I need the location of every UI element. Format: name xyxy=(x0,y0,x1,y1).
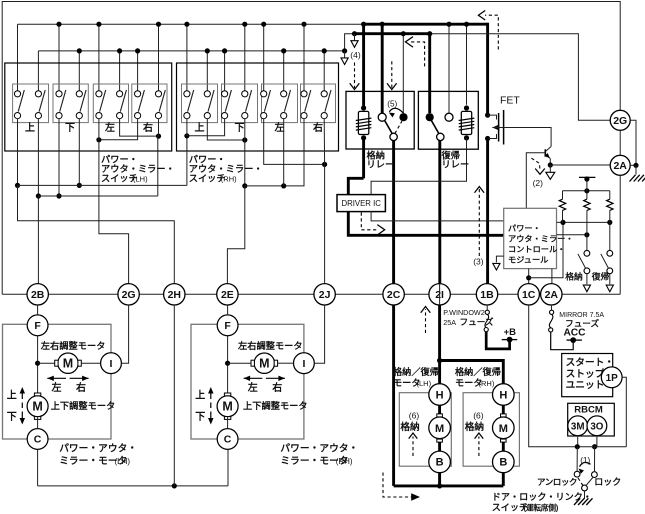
svg-text:(LH): (LH) xyxy=(115,457,131,466)
svg-text:左: 左 xyxy=(104,121,115,134)
svg-text:格納／復帰: 格納／復帰 xyxy=(393,366,439,377)
svg-text:アンロック: アンロック xyxy=(537,477,577,487)
svg-text:M: M xyxy=(32,400,42,414)
svg-text:H: H xyxy=(499,389,507,401)
svg-text:RBCM: RBCM xyxy=(574,405,603,416)
svg-text:モジュール: モジュール xyxy=(508,256,549,265)
svg-text:M: M xyxy=(259,356,269,370)
svg-text:コントロール・: コントロール・ xyxy=(508,245,565,254)
svg-text:パワー・: パワー・ xyxy=(508,223,541,233)
svg-text:ドア・ロック・リンク・: ドア・ロック・リンク・ xyxy=(492,492,592,502)
svg-text:パワー・アウタ・: パワー・アウタ・ xyxy=(280,443,358,455)
svg-text:リレー: リレー xyxy=(442,160,470,170)
svg-text:リレー: リレー xyxy=(367,160,395,170)
svg-text:1P: 1P xyxy=(606,373,619,384)
svg-text:H: H xyxy=(436,389,444,401)
svg-text:P.WINDOW2: P.WINDOW2 xyxy=(443,308,484,317)
svg-text:(1): (1) xyxy=(580,456,590,465)
svg-text:上: 上 xyxy=(195,389,205,402)
svg-text:上下調整モータ: 上下調整モータ xyxy=(51,400,116,411)
svg-text:(4): (4) xyxy=(350,50,361,60)
svg-text:1B: 1B xyxy=(480,289,494,301)
svg-text:(運転席側): (運転席側) xyxy=(524,503,559,513)
svg-text:パワー・: パワー・ xyxy=(101,153,138,164)
svg-text:アウタ・ミラー・: アウタ・ミラー・ xyxy=(101,163,175,174)
svg-text:(6): (6) xyxy=(409,410,420,420)
svg-text:(6): (6) xyxy=(473,410,484,420)
svg-text:格納: 格納 xyxy=(400,420,420,433)
svg-text:下: 下 xyxy=(7,411,17,423)
svg-text:C: C xyxy=(224,434,232,446)
svg-text:ACC: ACC xyxy=(563,328,586,339)
svg-text:F: F xyxy=(224,320,231,332)
svg-text:ロック: ロック xyxy=(594,477,621,487)
svg-text:2A: 2A xyxy=(613,160,627,172)
svg-text:2G: 2G xyxy=(122,289,136,301)
svg-text:(RH): (RH) xyxy=(221,175,237,184)
svg-text:1C: 1C xyxy=(522,289,536,301)
svg-text:パワー・アウタ・: パワー・アウタ・ xyxy=(59,443,137,455)
svg-text:(LH): (LH) xyxy=(133,175,148,184)
svg-text:F: F xyxy=(34,320,41,332)
svg-text:格納: 格納 xyxy=(465,420,485,433)
svg-text:アウタ・ミラー・: アウタ・ミラー・ xyxy=(189,163,263,174)
svg-text:格納／復帰: 格納／復帰 xyxy=(455,366,501,377)
svg-text:DRIVER IC: DRIVER IC xyxy=(341,199,381,208)
svg-text:上: 上 xyxy=(7,389,17,402)
svg-text:+B: +B xyxy=(504,327,517,338)
svg-text:上: 上 xyxy=(195,121,205,134)
svg-text:2B: 2B xyxy=(31,289,45,301)
svg-text:上: 上 xyxy=(25,121,35,134)
svg-text:右: 右 xyxy=(75,381,86,394)
svg-text:3M: 3M xyxy=(571,421,585,432)
svg-text:スタート・: スタート・ xyxy=(566,357,614,369)
svg-text:2A: 2A xyxy=(545,289,559,301)
svg-text:右: 右 xyxy=(271,381,282,394)
svg-text:2J: 2J xyxy=(319,289,331,301)
svg-text:復帰: 復帰 xyxy=(591,270,610,281)
svg-text:左右調整モータ: 左右調整モータ xyxy=(237,340,303,351)
svg-text:M: M xyxy=(63,356,73,370)
svg-text:パワー・: パワー・ xyxy=(189,153,226,164)
svg-text:下: 下 xyxy=(195,411,205,423)
svg-text:左右調整モータ: 左右調整モータ xyxy=(40,340,106,351)
svg-text:(RH): (RH) xyxy=(479,379,495,388)
svg-text:2E: 2E xyxy=(221,289,234,301)
svg-text:(2): (2) xyxy=(533,178,544,188)
svg-text:2H: 2H xyxy=(168,289,181,301)
svg-text:(LH): (LH) xyxy=(417,379,432,388)
svg-text:M: M xyxy=(222,400,232,414)
svg-text:(3): (3) xyxy=(473,257,484,267)
svg-text:I: I xyxy=(110,358,113,370)
svg-text:B: B xyxy=(499,457,507,469)
svg-text:C: C xyxy=(34,434,42,446)
svg-text:左: 左 xyxy=(51,381,62,394)
svg-text:(RH): (RH) xyxy=(336,457,353,466)
svg-text:M: M xyxy=(435,423,444,435)
svg-text:ユニット: ユニット xyxy=(566,380,605,391)
svg-text:M: M xyxy=(499,423,508,435)
svg-text:右: 右 xyxy=(142,121,153,134)
svg-text:下: 下 xyxy=(65,122,75,134)
svg-text:2C: 2C xyxy=(387,289,401,301)
svg-text:左: 左 xyxy=(247,381,258,394)
svg-text:下: 下 xyxy=(235,122,245,134)
svg-text:B: B xyxy=(436,457,444,469)
svg-text:I: I xyxy=(302,358,305,370)
svg-text:右: 右 xyxy=(312,121,323,134)
svg-text:左: 左 xyxy=(274,121,285,134)
svg-text:(5): (5) xyxy=(387,99,397,108)
svg-text:格納: 格納 xyxy=(565,270,583,281)
svg-text:FET: FET xyxy=(500,95,520,107)
svg-text:2G: 2G xyxy=(613,115,627,127)
svg-text:上下調整モータ: 上下調整モータ xyxy=(243,400,308,411)
svg-text:25A: 25A xyxy=(443,318,456,327)
svg-text:3O: 3O xyxy=(590,421,603,432)
